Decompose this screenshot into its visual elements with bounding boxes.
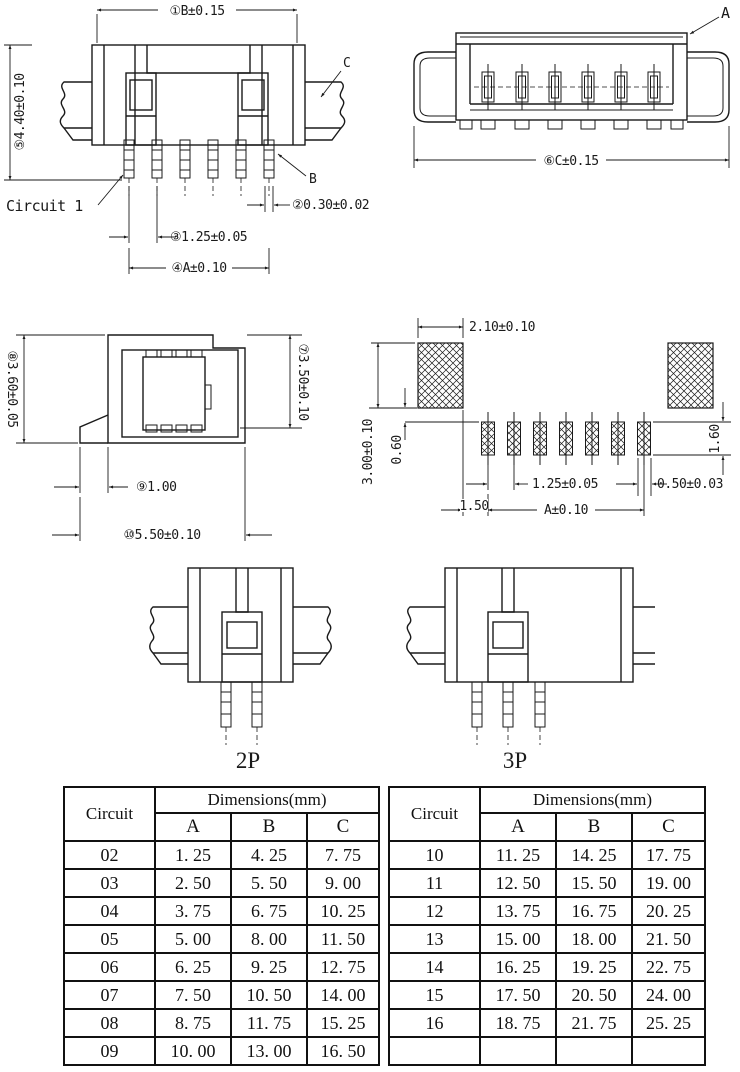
table-row: 1213. 7516. 7520. 25 xyxy=(389,897,705,925)
label-c: C xyxy=(343,56,350,71)
circuit-cell xyxy=(389,1037,480,1065)
dim-cell-a: 8. 75 xyxy=(155,1009,231,1037)
dim-cell-c: 10. 25 xyxy=(307,897,379,925)
table-row: 1618. 7521. 7525. 25 xyxy=(389,1009,705,1037)
dimensions-table-right: Circuit Dimensions(mm) A B C 1011. 2514.… xyxy=(388,786,706,1066)
dim-cell-c: 22. 75 xyxy=(632,953,705,981)
circuit-cell: 06 xyxy=(64,953,155,981)
circuit-cell: 10 xyxy=(389,841,480,869)
dim-cell-c: 25. 25 xyxy=(632,1009,705,1037)
dim-cell-b: 6. 75 xyxy=(231,897,307,925)
dim-cell-c: 20. 25 xyxy=(632,897,705,925)
dim-label-050: 0.50±0.03 xyxy=(657,477,723,492)
dim-label-160: 1.60 xyxy=(708,424,723,453)
side-view-drawing: ⑧3.60±0.05 ⑦3.50±0.10 ⑨1.00 ⑩5.50±0.10 xyxy=(0,295,330,555)
circuit-cell: 14 xyxy=(389,953,480,981)
dim-cell-a: 16. 25 xyxy=(480,953,556,981)
dim-cell-c: 7. 75 xyxy=(307,841,379,869)
dim-cell-c: 15. 25 xyxy=(307,1009,379,1037)
dim-label-c-width: ⑥C±0.15 xyxy=(543,154,598,169)
dim-cell-c: 17. 75 xyxy=(632,841,705,869)
table-body-right: 1011. 2514. 2517. 751112. 5015. 5019. 00… xyxy=(389,841,705,1065)
dim-label-pad-height: 3.00±0.10 xyxy=(361,419,376,485)
dim-cell-b: 10. 50 xyxy=(231,981,307,1009)
dim-cell-c: 24. 00 xyxy=(632,981,705,1009)
dim-cell-a: 2. 50 xyxy=(155,869,231,897)
table-row: 1315. 0018. 0021. 50 xyxy=(389,925,705,953)
dim-label-b-width: ①B±0.15 xyxy=(169,4,224,19)
table-row: 1011. 2514. 2517. 75 xyxy=(389,841,705,869)
table-row: 043. 756. 7510. 25 xyxy=(64,897,379,925)
dimensions-table-left: Circuit Dimensions(mm) A B C 021. 254. 2… xyxy=(63,786,380,1066)
dim-cell-c: 12. 75 xyxy=(307,953,379,981)
label-circuit-1: Circuit 1 xyxy=(6,197,83,215)
col-header-c: C xyxy=(632,813,705,841)
table-row xyxy=(389,1037,705,1065)
variant-label-2p: 2P xyxy=(236,748,260,773)
circuit-cell: 08 xyxy=(64,1009,155,1037)
col-header-c: C xyxy=(307,813,379,841)
table-row: 088. 7511. 7515. 25 xyxy=(64,1009,379,1037)
dim-cell-a xyxy=(480,1037,556,1065)
col-header-a: A xyxy=(155,813,231,841)
dim-cell-a: 10. 00 xyxy=(155,1037,231,1065)
dim-cell-a: 7. 50 xyxy=(155,981,231,1009)
circuit-cell: 16 xyxy=(389,1009,480,1037)
dim-cell-a: 13. 75 xyxy=(480,897,556,925)
dim-cell-a: 17. 50 xyxy=(480,981,556,1009)
side-view-dimensions: ⑧3.60±0.05 ⑦3.50±0.10 ⑨1.00 ⑩5.50±0.10 xyxy=(4,335,310,543)
dim-label-550: ⑩5.50±0.10 xyxy=(123,528,200,543)
dim-cell-c: 16. 50 xyxy=(307,1037,379,1065)
table-row: 055. 008. 0011. 50 xyxy=(64,925,379,953)
dim-cell-a: 15. 00 xyxy=(480,925,556,953)
variant-3p-outline xyxy=(407,568,655,745)
circuit-cell: 07 xyxy=(64,981,155,1009)
dim-cell-a: 1. 25 xyxy=(155,841,231,869)
circuit-cell: 05 xyxy=(64,925,155,953)
variant-label-3p: 3P xyxy=(503,748,527,773)
dim-label-pitch-125: 1.25±0.05 xyxy=(532,477,598,492)
dim-cell-b xyxy=(556,1037,632,1065)
front-view-drawing: ①B±0.15 ⑤4.40±0.10 Circuit 1 B C ②0.30±0… xyxy=(0,0,370,290)
table-row: 1517. 5020. 5024. 00 xyxy=(389,981,705,1009)
dim-cell-c: 14. 00 xyxy=(307,981,379,1009)
dim-cell-c: 11. 50 xyxy=(307,925,379,953)
dim-cell-a: 3. 75 xyxy=(155,897,231,925)
dim-cell-b: 5. 50 xyxy=(231,869,307,897)
dim-label-360: ⑧3.60±0.05 xyxy=(4,350,19,427)
dim-cell-b: 16. 75 xyxy=(556,897,632,925)
dim-cell-b: 4. 25 xyxy=(231,841,307,869)
dim-label-span-a: ④A±0.10 xyxy=(171,261,226,276)
variant-3p-drawing: 3P xyxy=(385,550,655,780)
table-row: 066. 259. 2512. 75 xyxy=(64,953,379,981)
variant-2p-outline xyxy=(150,568,331,745)
dim-cell-c xyxy=(632,1037,705,1065)
col-header-b: B xyxy=(556,813,632,841)
dim-cell-a: 5. 00 xyxy=(155,925,231,953)
dim-cell-b: 15. 50 xyxy=(556,869,632,897)
dim-label-350: ⑦3.50±0.10 xyxy=(295,343,310,420)
circuit-header: Circuit xyxy=(64,787,155,841)
circuit-cell: 12 xyxy=(389,897,480,925)
dim-label-pad-width: 2.10±0.10 xyxy=(469,320,535,335)
dim-label-offset-060: 0.60 xyxy=(390,435,405,464)
dim-cell-a: 12. 50 xyxy=(480,869,556,897)
table-row: 032. 505. 509. 00 xyxy=(64,869,379,897)
dim-cell-b: 18. 00 xyxy=(556,925,632,953)
table-row: 0910. 0013. 0016. 50 xyxy=(64,1037,379,1065)
table-row: 1112. 5015. 5019. 00 xyxy=(389,869,705,897)
dim-label-150: 1.50 xyxy=(459,499,488,514)
dim-cell-a: 6. 25 xyxy=(155,953,231,981)
dim-cell-b: 9. 25 xyxy=(231,953,307,981)
dim-cell-c: 21. 50 xyxy=(632,925,705,953)
table-body-left: 021. 254. 257. 75032. 505. 509. 00043. 7… xyxy=(64,841,379,1065)
connector-body-outline xyxy=(60,45,344,145)
dim-cell-b: 13. 00 xyxy=(231,1037,307,1065)
table-row: 1416. 2519. 2522. 75 xyxy=(389,953,705,981)
top-view-outline xyxy=(414,33,729,129)
label-b: B xyxy=(309,172,317,187)
circuit-cell: 13 xyxy=(389,925,480,953)
dim-cell-b: 14. 25 xyxy=(556,841,632,869)
dim-label-height-445: ⑤4.40±0.10 xyxy=(13,73,28,150)
col-header-a: A xyxy=(480,813,556,841)
variant-2p-drawing: 2P xyxy=(115,550,385,780)
side-view-outline xyxy=(80,335,245,443)
circuit-cell: 02 xyxy=(64,841,155,869)
dimensions-header: Dimensions(mm) xyxy=(480,787,705,813)
circuit-cell: 04 xyxy=(64,897,155,925)
dim-cell-a: 18. 75 xyxy=(480,1009,556,1037)
circuit-cell: 11 xyxy=(389,869,480,897)
table-row: 077. 5010. 5014. 00 xyxy=(64,981,379,1009)
table-row: 021. 254. 257. 75 xyxy=(64,841,379,869)
circuit-header: Circuit xyxy=(389,787,480,841)
top-view-drawing: A ⑥C±0.15 xyxy=(370,0,740,185)
dimensions-header: Dimensions(mm) xyxy=(155,787,379,813)
top-view-contacts xyxy=(474,64,669,110)
top-view-dimensions: A ⑥C±0.15 xyxy=(414,4,730,169)
dim-label-pitch: ③1.25±0.05 xyxy=(170,230,247,245)
connector-pins xyxy=(124,140,274,196)
circuit-cell: 15 xyxy=(389,981,480,1009)
dim-cell-c: 9. 00 xyxy=(307,869,379,897)
dim-cell-a: 11. 25 xyxy=(480,841,556,869)
col-header-b: B xyxy=(231,813,307,841)
dim-cell-c: 19. 00 xyxy=(632,869,705,897)
circuit-cell: 03 xyxy=(64,869,155,897)
dim-cell-b: 8. 00 xyxy=(231,925,307,953)
pcb-pads xyxy=(418,343,713,465)
engineering-drawing-page: { "front_view": { "dim_b": "①B±0.15", "d… xyxy=(0,0,740,1072)
dim-label-100: ⑨1.00 xyxy=(136,480,176,495)
pcb-layout-drawing: 2.10±0.10 3.00±0.10 0.60 1.60 1.25±0.05 xyxy=(355,300,740,540)
dim-cell-b: 21. 75 xyxy=(556,1009,632,1037)
dim-label-pin-width: ②0.30±0.02 xyxy=(292,198,369,213)
dim-cell-b: 11. 75 xyxy=(231,1009,307,1037)
circuit-cell: 09 xyxy=(64,1037,155,1065)
dim-label-a-span: A±0.10 xyxy=(544,503,588,518)
label-a: A xyxy=(721,4,730,22)
dim-cell-b: 20. 50 xyxy=(556,981,632,1009)
dim-cell-b: 19. 25 xyxy=(556,953,632,981)
